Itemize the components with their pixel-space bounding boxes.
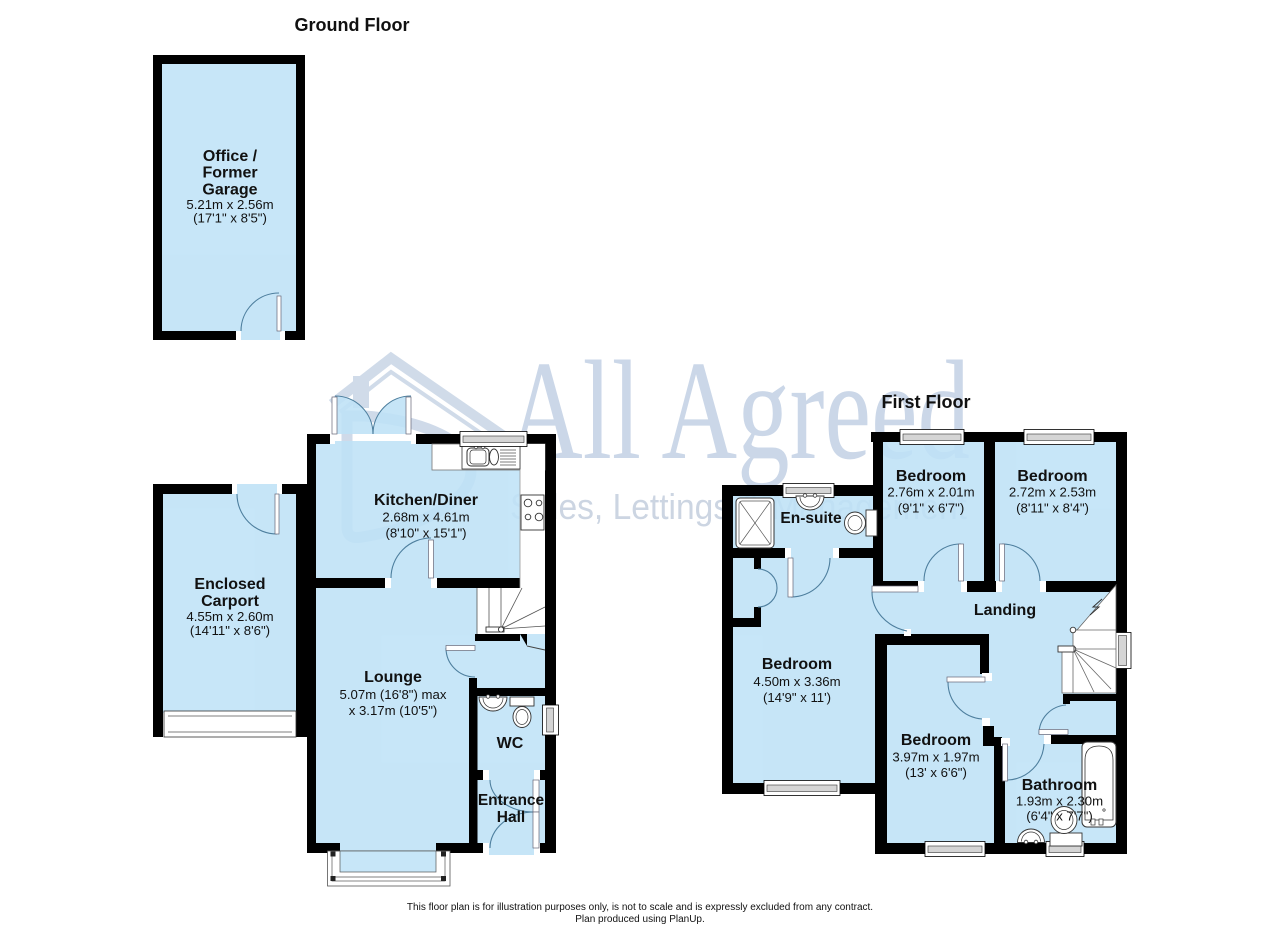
svg-text:2.72m x 2.53m: 2.72m x 2.53m [1009, 485, 1096, 500]
svg-text:3.97m x 1.97m: 3.97m x 1.97m [892, 750, 979, 765]
svg-text:Lounge: Lounge [364, 669, 422, 686]
svg-text:x 3.17m (10'5"): x 3.17m (10'5") [349, 703, 438, 718]
svg-text:(9'1" x 6'7"): (9'1" x 6'7") [898, 501, 964, 516]
svg-text:Bathroom: Bathroom [1022, 777, 1098, 794]
svg-text:Hall: Hall [497, 809, 525, 826]
svg-text:Bedroom: Bedroom [901, 732, 971, 749]
svg-text:4.55m x 2.60m: 4.55m x 2.60m [186, 609, 273, 624]
svg-text:(14'11" x 8'6"): (14'11" x 8'6") [190, 623, 270, 638]
svg-text:Former: Former [202, 165, 257, 182]
svg-text:First Floor: First Floor [882, 392, 971, 412]
svg-text:(17'1" x 8'5"): (17'1" x 8'5") [193, 211, 267, 226]
svg-text:2.76m x 2.01m: 2.76m x 2.01m [887, 485, 974, 500]
svg-text:Office /: Office / [203, 148, 258, 165]
svg-text:(8'10" x 15'1"): (8'10" x 15'1") [385, 526, 466, 541]
svg-text:5.07m (16'8") max: 5.07m (16'8") max [340, 687, 447, 702]
svg-text:Landing: Landing [974, 602, 1036, 619]
svg-text:Garage: Garage [202, 182, 257, 199]
svg-text:Entrance: Entrance [478, 792, 545, 809]
svg-text:This floor plan is for illustr: This floor plan is for illustration purp… [407, 902, 873, 913]
svg-text:En-suite: En-suite [780, 510, 842, 527]
svg-text:(8'11" x 8'4"): (8'11" x 8'4") [1016, 501, 1089, 516]
svg-text:Kitchen/Diner: Kitchen/Diner [374, 492, 478, 509]
svg-text:Bedroom: Bedroom [1017, 468, 1087, 485]
svg-text:(6'4" x 7'7"): (6'4" x 7'7") [1026, 809, 1092, 824]
svg-text:Plan produced using PlanUp.: Plan produced using PlanUp. [575, 914, 705, 925]
svg-text:2.68m x 4.61m: 2.68m x 4.61m [382, 510, 469, 525]
svg-text:WC: WC [497, 735, 524, 752]
svg-text:Ground Floor: Ground Floor [295, 15, 410, 35]
svg-text:Carport: Carport [201, 593, 259, 610]
svg-text:Enclosed: Enclosed [194, 576, 265, 593]
svg-text:1.93m x 2.30m: 1.93m x 2.30m [1016, 794, 1103, 809]
svg-text:(13' x 6'6"): (13' x 6'6") [905, 765, 967, 780]
svg-text:(14'9" x 11'): (14'9" x 11') [763, 690, 831, 705]
svg-text:Bedroom: Bedroom [762, 656, 832, 673]
svg-text:4.50m x 3.36m: 4.50m x 3.36m [753, 674, 840, 689]
svg-text:Bedroom: Bedroom [896, 468, 966, 485]
